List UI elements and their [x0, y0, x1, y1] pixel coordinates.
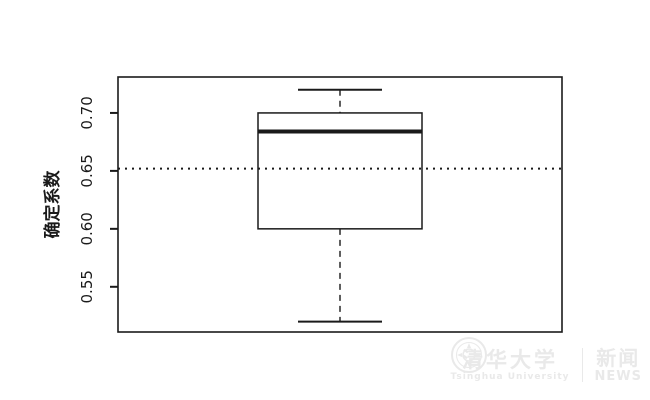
watermark-separator — [582, 348, 583, 382]
tsinghua-logo-icon — [450, 336, 488, 374]
watermark: 清华大学 Tsinghua University 新闻 NEWS — [450, 336, 642, 394]
plot-border — [118, 77, 562, 332]
y-axis-title: 确定系数 — [42, 170, 63, 239]
y-tick-label: 0.65 — [78, 154, 96, 187]
y-tick-label: 0.55 — [78, 270, 96, 303]
figure-canvas: 0.550.600.650.70确定系数 清华大学 Tsinghua Unive… — [0, 0, 650, 400]
watermark-news-cn: 新闻 — [596, 348, 640, 368]
watermark-news-en: NEWS — [595, 370, 642, 383]
y-tick-label: 0.70 — [78, 96, 96, 129]
watermark-news: 新闻 NEWS — [595, 348, 642, 383]
y-tick-label: 0.60 — [78, 212, 96, 245]
